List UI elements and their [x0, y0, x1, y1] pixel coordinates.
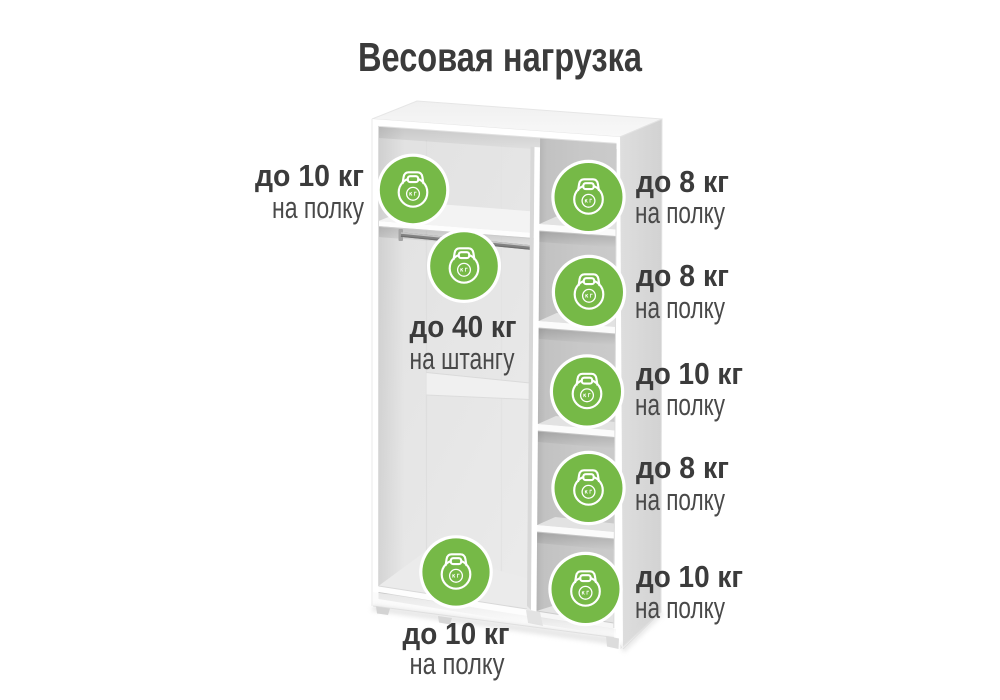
svg-text:Весовая нагрузка: Весовая нагрузка	[358, 34, 643, 80]
svg-text:на полку: на полку	[635, 387, 725, 422]
svg-text:на полку: на полку	[635, 590, 725, 625]
svg-text:до 10 кг: до 10 кг	[636, 356, 743, 391]
svg-text:до 8 кг: до 8 кг	[636, 258, 729, 293]
svg-text:на штангу: на штангу	[410, 341, 515, 376]
svg-text:на полку: на полку	[635, 482, 725, 517]
svg-text:до 40 кг: до 40 кг	[410, 309, 517, 344]
svg-text:на полку: на полку	[410, 646, 505, 681]
svg-text:до 10 кг: до 10 кг	[636, 559, 743, 594]
svg-text:до 8 кг: до 8 кг	[636, 450, 729, 485]
svg-text:на полку: на полку	[635, 195, 725, 230]
svg-text:до 10 кг: до 10 кг	[255, 158, 364, 193]
svg-text:на полку: на полку	[635, 290, 725, 325]
svg-text:до 8 кг: до 8 кг	[636, 164, 729, 199]
svg-text:на полку: на полку	[272, 190, 364, 225]
